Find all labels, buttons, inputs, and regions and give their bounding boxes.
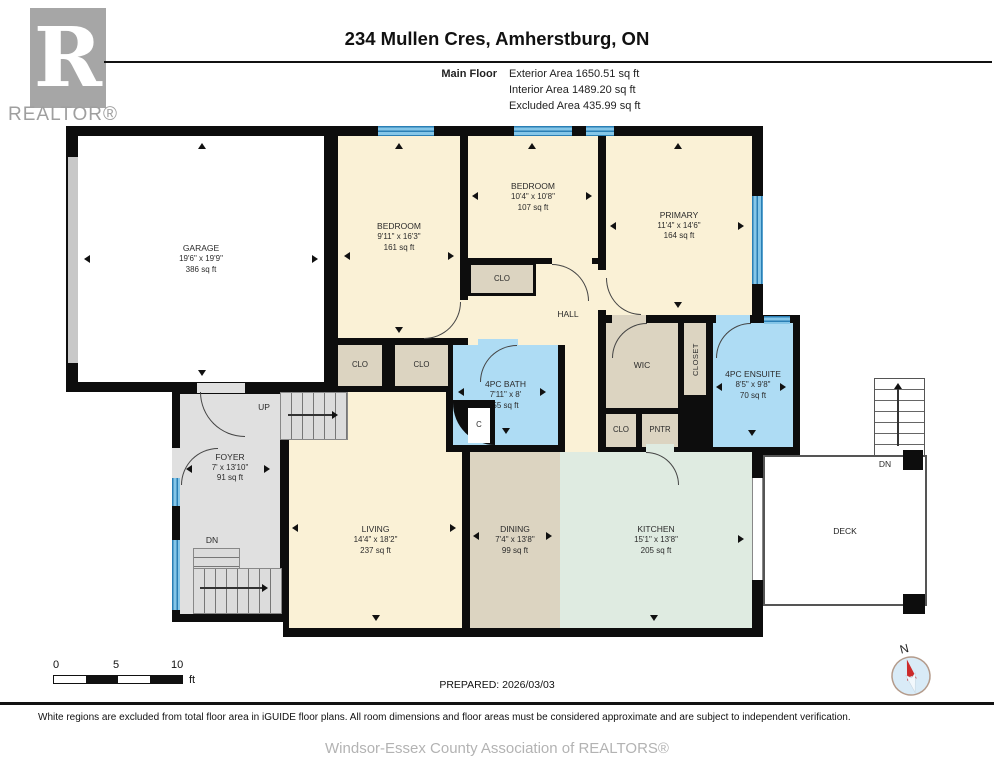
dimension-arrow — [546, 532, 552, 540]
stairs-down-lower — [193, 568, 282, 614]
dimension-arrow — [472, 192, 478, 200]
title-divider — [104, 61, 992, 63]
room-c-closet: C — [468, 408, 490, 443]
stairs-up-arrowhead — [332, 411, 338, 419]
dimension-arrow — [674, 143, 682, 149]
front-door-opening — [172, 448, 180, 478]
dimension-arrow — [344, 252, 350, 260]
floor-plan-page: R REALTOR® 234 Mullen Cres, Amherstburg,… — [0, 0, 994, 768]
scale-tick-10: 10 — [171, 659, 183, 671]
door-opening — [646, 444, 674, 452]
room-living: LIVING14'4" x 18'2"237 sq ft — [289, 452, 462, 628]
svg-text:N: N — [898, 641, 910, 657]
attribution-text: Windsor-Essex County Association of REAL… — [0, 740, 994, 757]
window — [172, 478, 180, 506]
dimension-arrow — [312, 255, 318, 263]
floor-label: Main Floor — [297, 68, 497, 80]
dimension-arrow — [650, 615, 658, 621]
deck-dn-label: DN — [872, 459, 898, 470]
room-dining: DINING7'4" x 13'8"99 sq ft — [470, 452, 560, 628]
room-clo-hall: CLO — [468, 262, 536, 296]
dimension-arrow — [186, 465, 192, 473]
exterior-area: Exterior Area 1650.51 sq ft — [509, 68, 739, 80]
footer-divider — [0, 702, 994, 705]
deck-stairs — [874, 378, 925, 456]
dimension-arrow — [738, 222, 744, 230]
hall-corridor — [565, 345, 598, 452]
dn-label: DN — [200, 535, 224, 546]
deck-stairs-arrowhead — [894, 383, 902, 389]
window — [752, 196, 763, 284]
dimension-arrow — [780, 383, 786, 391]
deck-post — [903, 594, 925, 614]
patio-door-opening — [752, 478, 763, 580]
hall-label: HALL — [535, 303, 601, 324]
room-clo-left1: CLO — [338, 345, 382, 386]
dimension-arrow — [540, 388, 546, 396]
scale-tick-5: 5 — [113, 659, 119, 671]
scale-tick-0: 0 — [53, 659, 59, 671]
excluded-area: Excluded Area 435.99 sq ft — [509, 100, 739, 112]
interior-area: Interior Area 1489.20 sq ft — [509, 84, 739, 96]
dimension-arrow — [292, 524, 298, 532]
door-opening — [552, 258, 592, 264]
window — [514, 126, 572, 136]
deck-stairs-arrow — [897, 388, 899, 446]
door-opening — [460, 300, 468, 338]
dimension-arrow — [395, 327, 403, 333]
dimension-arrow — [448, 252, 454, 260]
dimension-arrow — [473, 532, 479, 540]
dimension-arrow — [395, 143, 403, 149]
page-title: 234 Mullen Cres, Amherstburg, ON — [0, 28, 994, 50]
room-bedroom-mid: BEDROOM10'4" x 10'8"107 sq ft — [468, 136, 598, 258]
dimension-arrow — [84, 255, 90, 263]
window — [586, 126, 614, 136]
room-closet: CLOSET — [684, 323, 706, 395]
realtor-logo: R — [30, 8, 106, 108]
dimension-arrow — [372, 615, 380, 621]
up-label: UP — [252, 402, 276, 413]
disclaimer-text: White regions are excluded from total fl… — [38, 712, 968, 723]
room-deck: DECK — [763, 455, 927, 606]
dimension-arrow — [674, 302, 682, 308]
realtor-logo-label: REALTOR® — [2, 104, 124, 126]
dimension-arrow — [716, 383, 722, 391]
dimension-arrow — [198, 370, 206, 376]
dimension-arrow — [458, 388, 464, 396]
floor-stats: Main FloorExterior Area 1650.51 sq ft In… — [297, 68, 739, 112]
room-clo-small: CLO — [606, 414, 636, 447]
prepared-date: PREPARED: 2026/03/03 — [0, 679, 994, 691]
dimension-arrow — [748, 430, 756, 436]
window — [764, 316, 790, 324]
dimension-arrow — [610, 222, 616, 230]
room-garage: GARAGE19'6" x 19'9"386 sq ft — [78, 136, 324, 382]
door-opening — [598, 270, 606, 310]
garage-door — [68, 157, 78, 363]
door-opening — [478, 339, 518, 345]
door-opening — [612, 315, 646, 323]
stairs-down-upper — [193, 548, 240, 570]
dimension-arrow — [198, 143, 206, 149]
room-clo-left2: CLO — [395, 345, 448, 386]
stairs-down-arrowhead — [262, 584, 268, 592]
stairs-up-arrow — [288, 414, 332, 416]
dimension-arrow — [502, 428, 510, 434]
door-opening — [716, 315, 750, 323]
deck-post — [903, 450, 923, 470]
window — [172, 540, 180, 610]
room-pntr: PNTR — [642, 414, 678, 447]
dimension-arrow — [738, 535, 744, 543]
stairs-down-arrow — [200, 587, 262, 589]
dimension-arrow — [264, 465, 270, 473]
compass-icon: N — [884, 638, 938, 700]
dimension-arrow — [586, 192, 592, 200]
dimension-arrow — [528, 143, 536, 149]
dimension-arrow — [450, 524, 456, 532]
window — [378, 126, 434, 136]
